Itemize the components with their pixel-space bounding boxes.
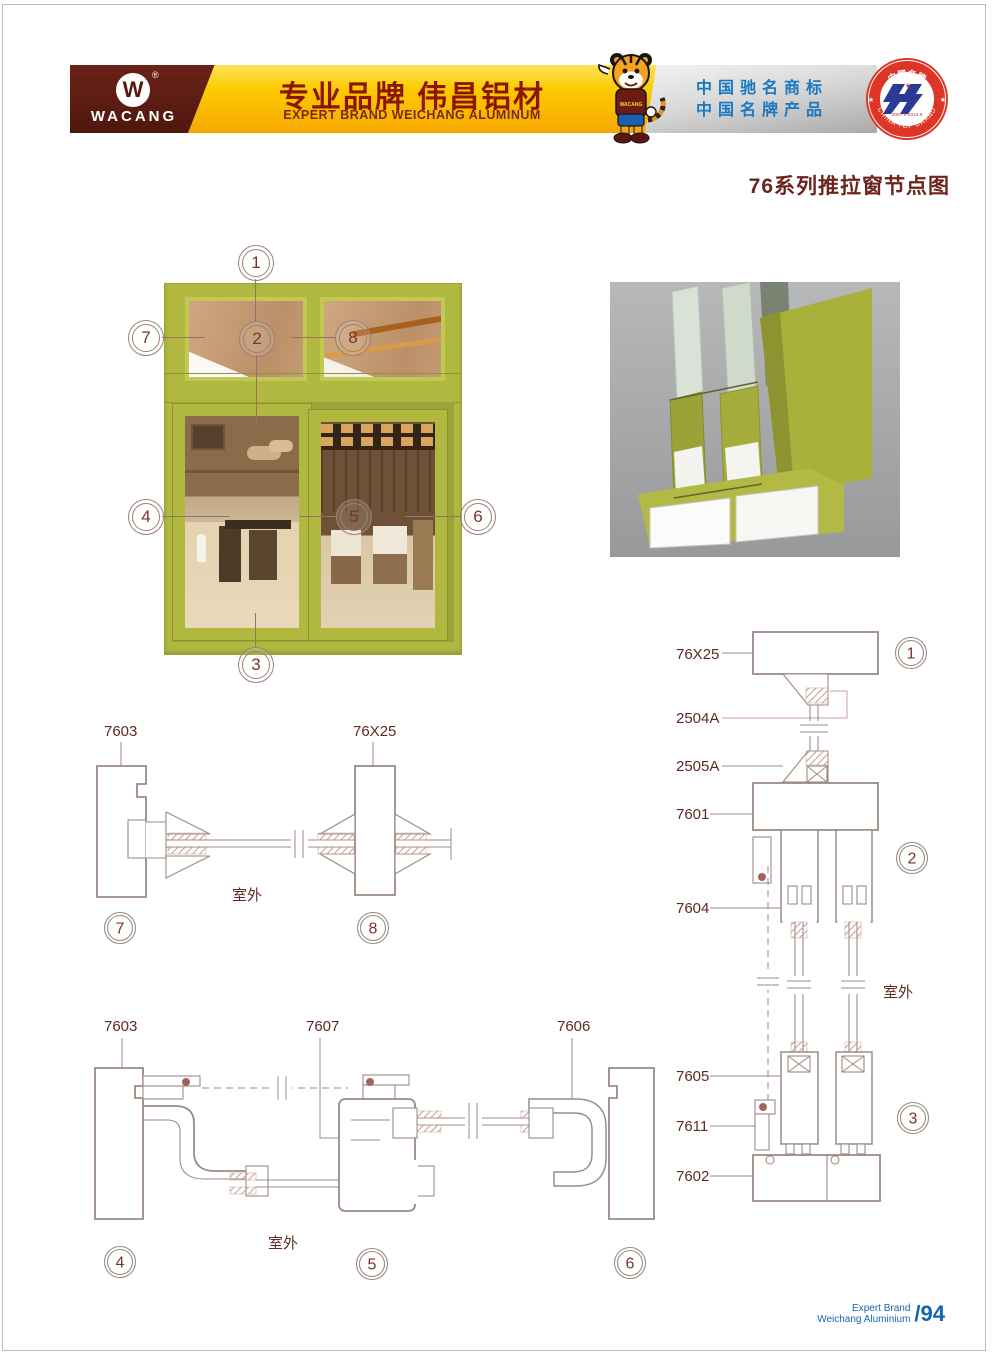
chair-back (373, 526, 407, 554)
brand-name: WACANG (70, 108, 198, 125)
banner-title-en: EXPERT BRAND WEICHANG ALUMINUM (232, 108, 592, 122)
registered-mark: ® (152, 70, 159, 80)
chair (219, 526, 241, 582)
leader-line-5 (300, 516, 336, 517)
section-7-8-drawing: 7603 76X25 室外 7 8 (70, 700, 490, 960)
leader-line-8 (291, 337, 335, 338)
svg-text:7603: 7603 (104, 1018, 137, 1035)
window-illustration (164, 283, 462, 655)
table-edge (225, 520, 291, 529)
page-number: /94 (914, 1301, 945, 1327)
sash-glass-left (185, 416, 299, 628)
callout-5-section: 5 (357, 1249, 388, 1280)
callout-7-section: 7 (105, 913, 136, 944)
callout-1-section: 1 (896, 638, 927, 669)
shelf-line (185, 470, 299, 473)
leader-line-2 (256, 355, 257, 425)
callout-4-section: 4 (105, 1247, 136, 1278)
lattice-screen-rows (321, 424, 435, 450)
page-title: 76系列推拉窗节点图 (650, 170, 950, 200)
svg-text:2: 2 (908, 851, 917, 868)
svg-text:2504A: 2504A (676, 710, 719, 727)
leader-line-1 (255, 279, 256, 321)
svg-text:7602: 7602 (676, 1168, 709, 1185)
svg-text:室外: 室外 (883, 984, 913, 1001)
svg-text:4: 4 (116, 1255, 125, 1272)
accolade-line-2: 中国名牌产品 (662, 96, 862, 120)
china-top-brand-badge: 中国名牌 CHINA TOP BRAND ★ ★ ★ 2007.9-2012.9 (864, 56, 950, 142)
footer: Expert Brand Weichang Aluminium /94 (700, 1301, 945, 1327)
svg-text:7601: 7601 (676, 806, 709, 823)
svg-text:3: 3 (909, 1111, 918, 1128)
svg-text:7604: 7604 (676, 900, 709, 917)
catalog-page: W ® WACANG 专业品牌 伟昌铝材 EXPERT BRAND WEICHA… (0, 0, 1000, 1366)
svg-text:7603: 7603 (104, 723, 137, 740)
table-edge (413, 520, 433, 590)
leader-line-4 (162, 516, 230, 517)
svg-text:室外: 室外 (268, 1235, 298, 1252)
vase (197, 534, 206, 562)
wacang-logo-icon: W (116, 73, 150, 107)
footer-brand-line2: Weichang Aluminium (817, 1314, 910, 1325)
callout-3-section: 3 (898, 1103, 929, 1134)
svg-text:2007.9-2012.9: 2007.9-2012.9 (892, 112, 923, 118)
pillow (269, 440, 293, 452)
svg-text:WACANG: WACANG (620, 102, 643, 108)
svg-text:★: ★ (940, 96, 946, 104)
svg-text:6: 6 (626, 1256, 635, 1273)
svg-text:2505A: 2505A (676, 758, 719, 775)
callout-1: 1 (238, 245, 274, 281)
section-1-2-3-drawing: 76X25 1 2504A 2505A 7601 2 (650, 620, 960, 1210)
sliding-sash-left (172, 403, 312, 641)
frame-seam (164, 373, 462, 374)
svg-text:76X25: 76X25 (676, 646, 719, 663)
footer-brand-line1: Expert Brand (817, 1303, 910, 1314)
callout-4: 4 (128, 499, 164, 535)
tiger-mascot-icon: WACANG (594, 50, 674, 144)
callout-8: 8 (335, 320, 371, 356)
svg-text:7: 7 (116, 921, 125, 938)
sliding-sash-right (308, 409, 448, 641)
picture-frame (191, 424, 225, 450)
svg-text:★: ★ (868, 96, 874, 104)
leader-line-6 (405, 516, 460, 517)
chair (249, 530, 277, 580)
accolade-line-1: 中国驰名商标 (662, 74, 862, 98)
svg-text:76X25: 76X25 (353, 723, 396, 740)
callout-2: 2 (239, 321, 275, 357)
svg-text:1: 1 (907, 646, 916, 663)
section-4-5-6-drawing: 7603 7607 76 (60, 1000, 660, 1285)
callout-5: 5 (336, 499, 372, 535)
profile-3d-render (610, 282, 900, 557)
svg-text:8: 8 (369, 921, 378, 938)
svg-text:室外: 室外 (232, 887, 262, 904)
svg-text:7611: 7611 (676, 1118, 708, 1135)
sliding-track-area (172, 402, 454, 642)
callout-7: 7 (128, 320, 164, 356)
callout-6-section: 6 (615, 1248, 646, 1279)
svg-text:7607: 7607 (306, 1018, 339, 1035)
leader-line-7 (162, 337, 205, 338)
leader-line-3 (255, 613, 256, 647)
callout-3: 3 (238, 647, 274, 683)
svg-text:7605: 7605 (676, 1068, 709, 1085)
svg-text:★: ★ (905, 82, 911, 90)
svg-text:5: 5 (368, 1257, 377, 1274)
wood-screen (321, 450, 435, 512)
callout-6: 6 (460, 499, 496, 535)
callout-2-section: 2 (897, 843, 928, 874)
callout-8-section: 8 (358, 913, 389, 944)
svg-text:7606: 7606 (557, 1018, 590, 1035)
